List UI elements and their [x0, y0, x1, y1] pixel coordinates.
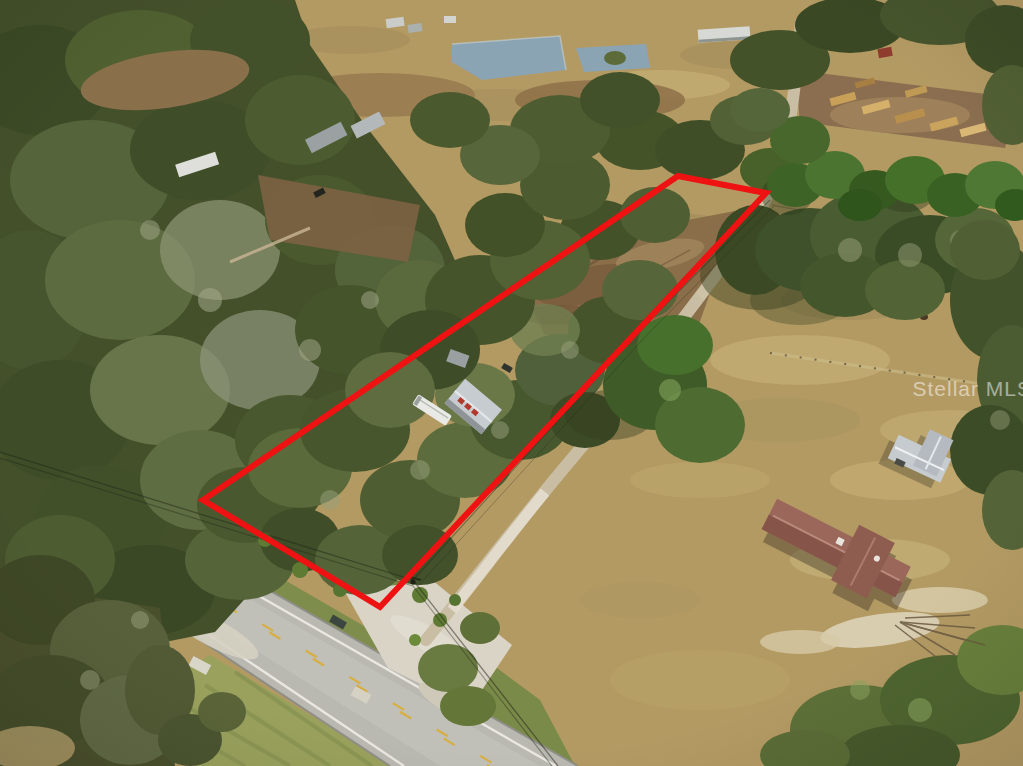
aerial-photo-canvas: Stellar MLS: [0, 0, 1023, 766]
vignette-overlay: [0, 0, 1023, 766]
aerial-property-photo: Stellar MLS: [0, 0, 1023, 766]
